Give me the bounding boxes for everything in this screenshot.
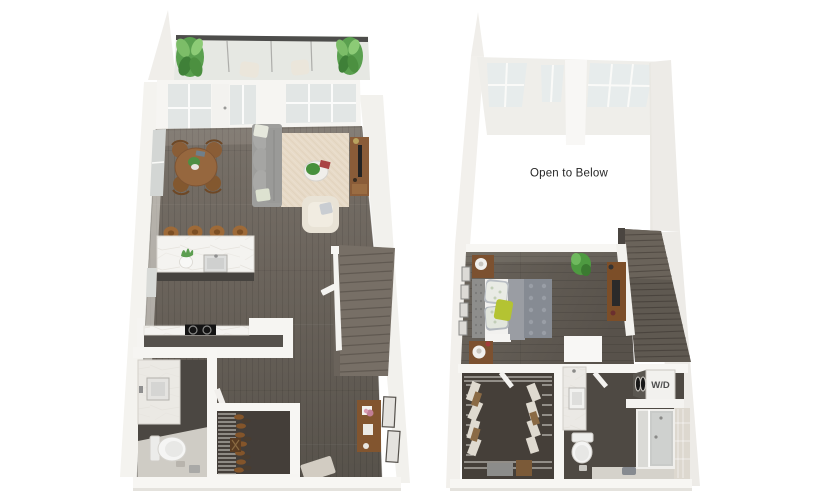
svg-text:W/D: W/D (651, 380, 670, 391)
svg-text:Open to Below: Open to Below (530, 168, 609, 180)
